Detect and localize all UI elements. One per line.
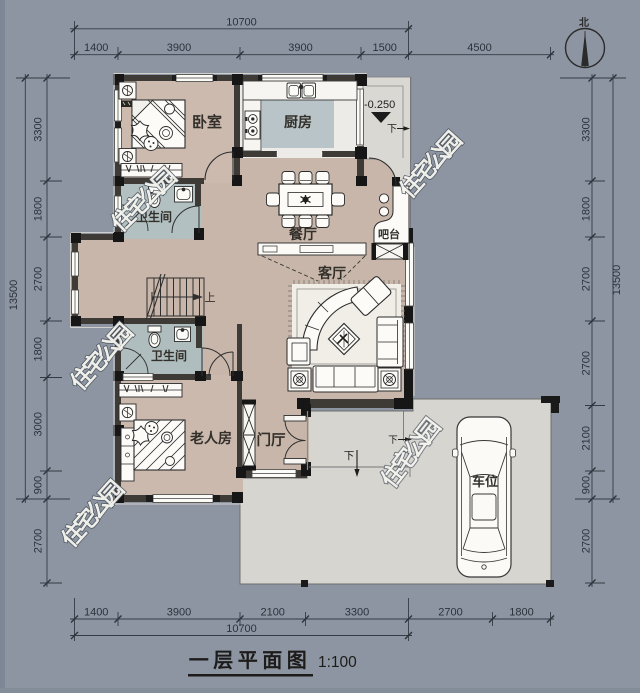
svg-text:4500: 4500 xyxy=(467,42,491,54)
svg-text:1800: 1800 xyxy=(33,337,45,361)
svg-text:3000: 3000 xyxy=(33,412,45,436)
svg-text:1400: 1400 xyxy=(84,42,108,54)
svg-text:2700: 2700 xyxy=(581,529,593,553)
svg-text:2700: 2700 xyxy=(581,351,593,375)
svg-text:北: 北 xyxy=(579,16,589,29)
svg-text:1400: 1400 xyxy=(84,607,108,619)
svg-text:1:100: 1:100 xyxy=(318,654,357,671)
svg-text:卫生间: 卫生间 xyxy=(151,348,187,363)
svg-text:10700: 10700 xyxy=(226,17,257,29)
svg-text:厨房: 厨房 xyxy=(284,114,312,130)
svg-text:吧台: 吧台 xyxy=(378,227,400,241)
svg-text:下: 下 xyxy=(388,435,398,446)
svg-text:老人房: 老人房 xyxy=(190,430,232,446)
svg-text:餐厅: 餐厅 xyxy=(288,226,317,242)
svg-text:一层平面图: 一层平面图 xyxy=(189,649,312,672)
svg-text:13500: 13500 xyxy=(611,265,623,296)
svg-text:900: 900 xyxy=(33,476,45,494)
svg-text:2700: 2700 xyxy=(33,267,45,291)
svg-text:3300: 3300 xyxy=(581,117,593,141)
svg-text:900: 900 xyxy=(581,476,593,494)
svg-text:2100: 2100 xyxy=(260,607,284,619)
svg-text:2100: 2100 xyxy=(581,426,593,450)
svg-text:3900: 3900 xyxy=(167,42,191,54)
svg-text:-0.250: -0.250 xyxy=(364,99,395,111)
svg-text:1800: 1800 xyxy=(33,197,45,221)
svg-text:3300: 3300 xyxy=(33,117,45,141)
svg-text:1500: 1500 xyxy=(372,42,396,54)
svg-text:车位: 车位 xyxy=(472,474,498,489)
svg-text:2700: 2700 xyxy=(438,607,462,619)
svg-text:3900: 3900 xyxy=(167,607,191,619)
svg-text:1800: 1800 xyxy=(581,197,593,221)
svg-text:卧室: 卧室 xyxy=(192,113,222,131)
svg-text:3300: 3300 xyxy=(345,607,369,619)
svg-text:下: 下 xyxy=(344,450,355,462)
svg-text:10700: 10700 xyxy=(226,623,257,635)
svg-text:1800: 1800 xyxy=(509,607,533,619)
svg-text:2700: 2700 xyxy=(581,267,593,291)
svg-text:13500: 13500 xyxy=(8,280,20,311)
svg-text:上: 上 xyxy=(205,291,216,304)
svg-text:下: 下 xyxy=(387,124,397,135)
svg-text:门厅: 门厅 xyxy=(257,431,286,449)
svg-text:2700: 2700 xyxy=(33,529,45,553)
svg-text:3900: 3900 xyxy=(288,42,312,54)
svg-text:客厅: 客厅 xyxy=(317,265,346,281)
